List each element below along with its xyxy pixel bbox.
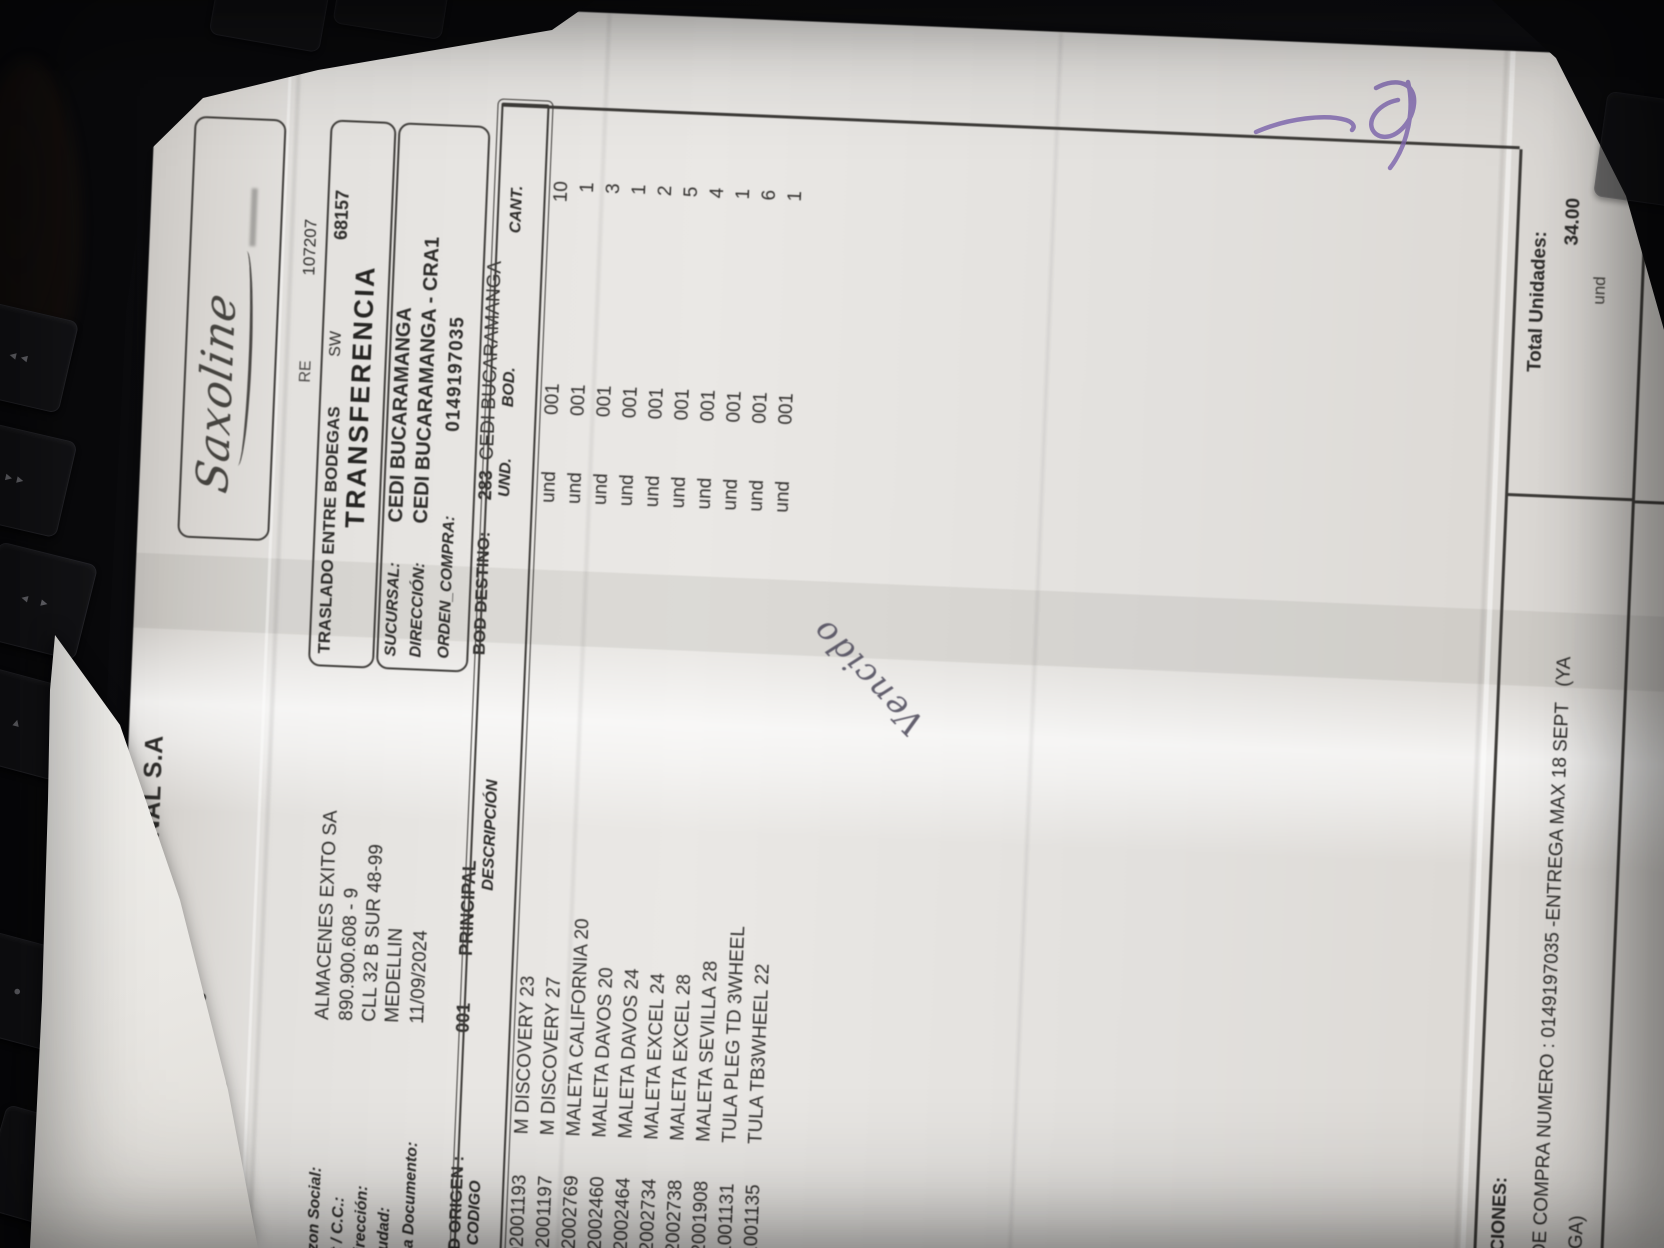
cell-bod: 001 [543,383,563,415]
ciudad-label: Ciudad: [375,1207,393,1248]
cell-und: und [643,475,663,507]
cell-bod: 001 [750,392,770,424]
cell-descripcion: M DISCOVERY 23 [512,975,538,1134]
observaciones-label: OBSERVACIONES: [1485,1177,1510,1248]
cell-codigo: 002002460 [585,1176,608,1248]
cell-cant: 3 [600,183,623,284]
cell-cant: 1 [730,188,753,289]
column-header-und: UND. [497,458,515,498]
razon-social-label: Razon Social: [305,1167,325,1248]
totals-bottom-rule [1595,155,1649,1248]
cell-und: und [721,478,741,510]
cell-und: und [669,476,689,508]
cell-und: und [747,480,767,512]
customer-nit-value: 890.900.608 - 9 [337,887,362,1021]
photo-stage: STARWEAR INTERNATIONAL S.A Nit: 800,185,… [0,0,1664,1248]
cell-cant: 6 [756,189,779,290]
totals-label: Total Unidades: [1525,231,1550,373]
fecha-value: 11/09/2024 [408,930,431,1024]
customer-dir-label: Dirección: [352,1185,371,1248]
cell-bod: 001 [672,388,692,420]
transfer-code: SW [328,331,345,357]
key-glyph: ◂◂ [8,347,34,368]
handwritten-note: Vencido [805,588,956,742]
cell-und: und [695,477,715,509]
column-header-codigo: CODIGO [466,1180,485,1246]
totals-divider [1505,493,1635,501]
cell-bod: 001 [776,393,796,425]
fold-crease [1456,51,1516,1248]
cell-codigo: 002001197 [533,1175,556,1248]
cell-cant: 5 [678,186,701,287]
cell-cant: 4 [704,187,727,288]
cell-cant: 10 [548,181,571,282]
cell-descripcion: M DISCOVERY 27 [538,976,564,1135]
footer-divider [1634,501,1664,506]
totals-top-rule [1468,149,1522,1248]
doc-ref-label: RE [298,360,315,383]
column-header-bod: BOD. [501,367,519,408]
cell-und: und [617,474,637,506]
cell-cant: 2 [652,185,675,286]
observaciones-line1: ORDEN DE COMPRA NUMERO : 0149197035 -ENT… [1527,656,1574,1248]
second-sheet-corner [0,600,300,1248]
fold-crease [1004,32,1063,1248]
cell-bod: 001 [569,384,589,416]
cell-und: und [565,472,585,504]
transfer-number: 68157 [332,190,352,241]
cell-bod: 001 [646,387,666,419]
cell-codigo: 002001908 [689,1180,712,1248]
customer-nit-label: Nit / C.C.: [329,1196,348,1248]
handwritten-tally-mark [1248,70,1448,180]
cell-cant: 1 [574,182,597,283]
cell-bod: 001 [698,389,718,421]
cell-codigo: 002002464 [611,1177,634,1248]
cell-codigo: 001001135 [741,1184,764,1248]
cell-bod: 001 [724,390,744,422]
document-paper: STARWEAR INTERNATIONAL S.A Nit: 800,185,… [105,0,1664,1248]
cell-cant: 1 [782,191,805,292]
ciudad-value: MEDELLIN [383,927,406,1023]
cell-und: und [591,473,611,505]
second-sheet-surface [0,600,300,1248]
fecha-label: Fecha Documento: [399,1141,421,1248]
observaciones-line2: PRORROGA) [1563,1215,1587,1248]
totals-unit: und [1590,276,1608,305]
key-glyph: ▸▸ [4,469,30,490]
doc-ref-number: 107207 [300,219,319,276]
cell-cant: 1 [626,184,649,285]
cell-bod: 001 [621,386,641,418]
cell-und: und [773,481,793,513]
cell-bod: 001 [595,385,615,417]
cell-codigo: 002001193 [507,1174,530,1248]
orden-compra-value: 0149197035 [444,316,468,432]
cell-descripcion: MALETA EXCEL 24 [642,973,668,1141]
cell-codigo: 002002769 [559,1175,582,1248]
cell-codigo: 002002734 [637,1178,660,1248]
totals-value: 34.00 [1563,198,1584,246]
cell-und: und [539,471,559,503]
cell-codigo: 002002738 [663,1179,686,1248]
column-header-cant: CANT. [508,185,526,233]
cell-codigo: 001001131 [715,1183,738,1248]
